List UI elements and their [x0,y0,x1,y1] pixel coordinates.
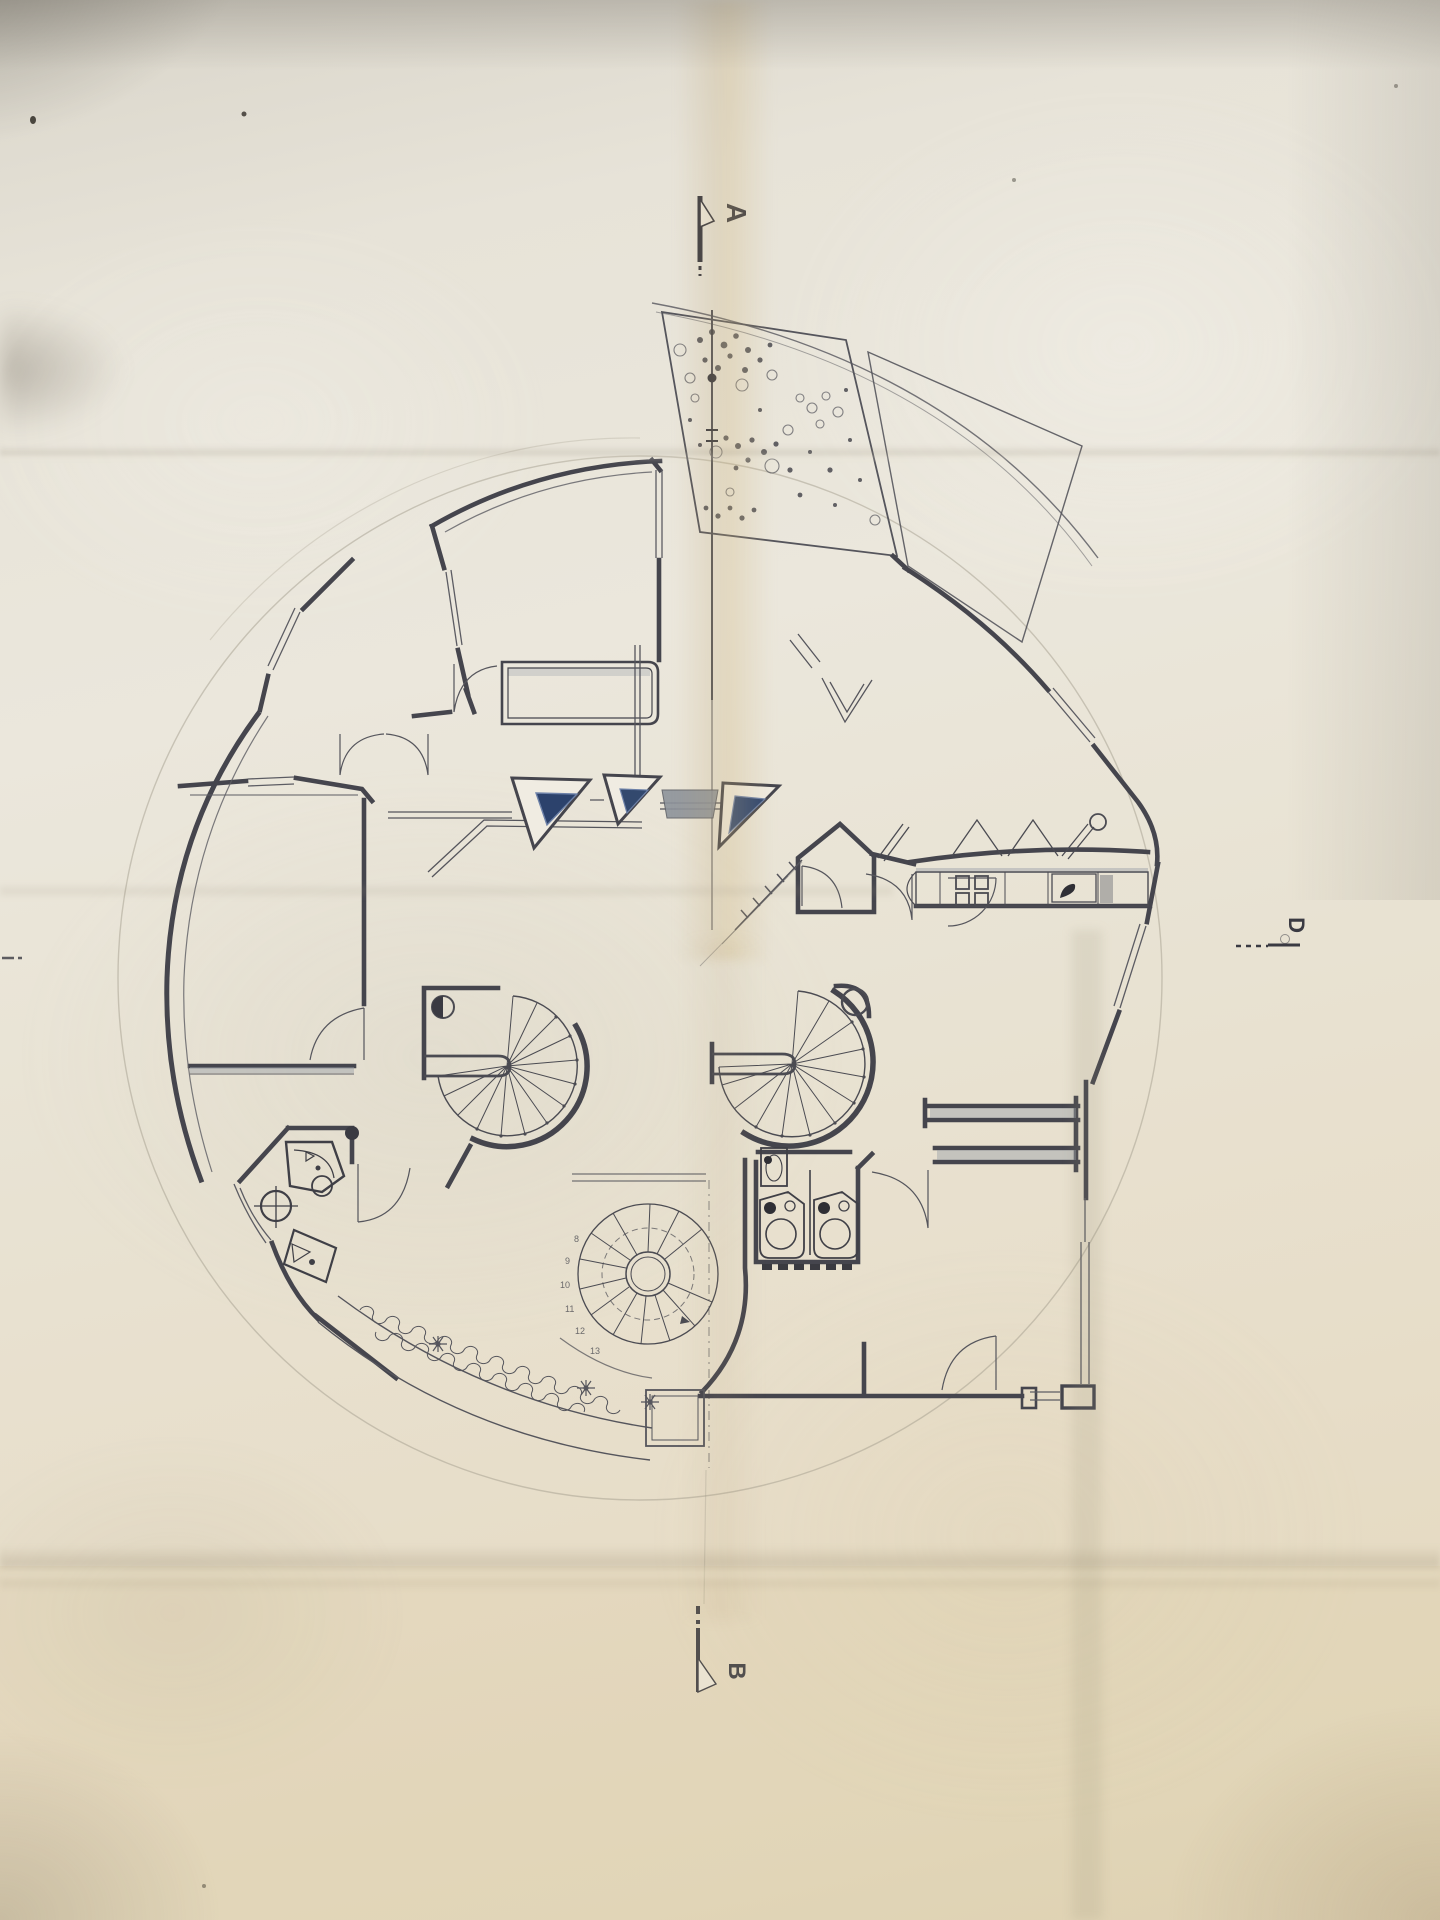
skylight-3 [719,783,779,847]
section-label-d: D [1284,917,1309,933]
stair-tread-numbers: 8 9 10 11 12 13 [560,1234,600,1356]
planting-strip [318,1296,704,1460]
section-marker-a: A [700,196,752,276]
blueprint-photo: 8 9 10 11 12 13 [0,0,1440,1920]
tread-number: 13 [590,1346,600,1356]
spiral-stair-bottom [560,1204,718,1378]
roof-garden [652,303,1098,642]
sill-dashes [762,1264,852,1270]
grey-sill-fills [190,668,1148,1160]
section-label-a: A [721,203,752,223]
entry-steps [700,860,802,966]
door-arcs [310,664,996,1390]
floor-plan-drawing: 8 9 10 11 12 13 [0,0,1440,1920]
garden-planting-dots [688,329,862,521]
section-marker-b: B [698,1606,750,1692]
lower-sink [284,1230,336,1282]
tread-number: 12 [575,1326,585,1336]
hood [1090,814,1106,830]
toilet-left [760,1192,804,1258]
faucet [1060,884,1075,898]
pencil-circle [118,438,1162,1604]
spiral-stair-left [424,996,579,1138]
tread-number: 8 [574,1234,579,1244]
wc-pair [760,1148,858,1270]
tread-number: 10 [560,1280,570,1290]
spiral-stair-right [712,989,868,1138]
section-marker-d: D [1236,917,1309,946]
column [345,1126,359,1140]
skylight-triangles [512,775,779,848]
paper-specks [30,84,1398,1888]
toilet-right [814,1192,858,1258]
tread-number: 9 [565,1256,570,1266]
section-label-b: B [723,1662,750,1679]
planter-end-box [646,1390,704,1446]
section-line-ab [706,310,718,1468]
washbasin [254,1186,298,1228]
stove-burners [956,876,988,906]
tread-number: 11 [565,1304,574,1314]
skylight-grey-panel [662,790,718,818]
